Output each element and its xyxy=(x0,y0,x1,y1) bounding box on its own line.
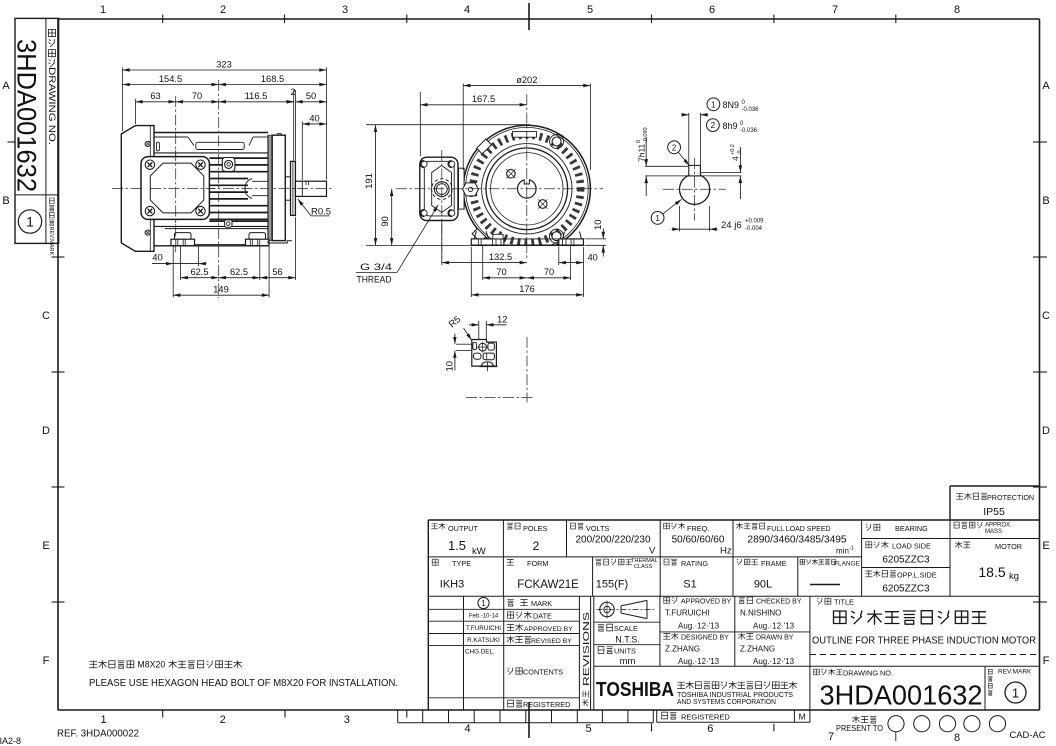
svg-text:MARK: MARK xyxy=(531,599,552,608)
svg-text:0: 0 xyxy=(737,150,743,153)
svg-text:CLASS: CLASS xyxy=(634,564,653,570)
svg-text:Hz: Hz xyxy=(720,546,732,557)
svg-text:R5: R5 xyxy=(447,314,463,330)
svg-text:2: 2 xyxy=(672,143,677,152)
svg-text:70: 70 xyxy=(192,91,202,101)
svg-text:4: 4 xyxy=(464,723,470,735)
svg-text:kg: kg xyxy=(1009,571,1019,582)
svg-text:AND SYSTEMS CORPORATION: AND SYSTEMS CORPORATION xyxy=(677,699,776,706)
svg-text:5: 5 xyxy=(587,4,593,16)
svg-text:MASS: MASS xyxy=(985,529,1002,535)
svg-text:N.T.S.: N.T.S. xyxy=(615,635,640,645)
svg-text:IKH3: IKH3 xyxy=(440,579,464,591)
svg-text:FRAME: FRAME xyxy=(761,559,787,568)
svg-text:12: 12 xyxy=(497,315,508,326)
svg-text:6: 6 xyxy=(707,723,713,735)
svg-text:THREAD: THREAD xyxy=(357,275,392,286)
svg-text:APPROX.: APPROX. xyxy=(985,523,1012,529)
svg-text:6205ZZC3: 6205ZZC3 xyxy=(882,555,930,566)
svg-text:40: 40 xyxy=(309,113,319,123)
svg-text:0: 0 xyxy=(740,121,744,127)
svg-text:7: 7 xyxy=(832,4,838,16)
svg-text:1: 1 xyxy=(481,599,486,608)
svg-text:1: 1 xyxy=(101,714,107,726)
svg-text:2: 2 xyxy=(711,121,716,130)
svg-text:3: 3 xyxy=(344,714,350,726)
svg-text:PLEASE USE HEXAGON HEAD BOLT O: PLEASE USE HEXAGON HEAD BOLT OF M8X20 FO… xyxy=(89,678,398,689)
svg-text:1.5: 1.5 xyxy=(448,538,466,553)
svg-text:2: 2 xyxy=(220,4,226,16)
svg-text:DRAWING NO.: DRAWING NO. xyxy=(47,67,57,145)
svg-text:1: 1 xyxy=(655,214,660,223)
svg-text:T.FURUICHI: T.FURUICHI xyxy=(466,625,501,632)
svg-text:DATE: DATE xyxy=(533,612,552,621)
svg-text:FREQ.: FREQ. xyxy=(687,524,709,533)
svg-text:-0.090: -0.090 xyxy=(643,127,649,143)
svg-text:7h11: 7h11 xyxy=(637,143,647,162)
svg-text:90L: 90L xyxy=(754,579,772,591)
svg-text:3HDA001632: 3HDA001632 xyxy=(12,39,42,192)
svg-text:Aug.·12·'13: Aug.·12·'13 xyxy=(678,657,720,666)
svg-text:FLANGE: FLANGE xyxy=(834,561,861,568)
svg-text:OUTLINE FOR THREE PHASE INDUCT: OUTLINE FOR THREE PHASE INDUCTION MOTOR xyxy=(812,636,1036,647)
svg-text:V: V xyxy=(649,546,656,557)
svg-text:50/60/60/60: 50/60/60/60 xyxy=(672,535,725,546)
svg-text:FCKAW21E: FCKAW21E xyxy=(517,579,579,591)
svg-text:4: 4 xyxy=(731,156,741,161)
svg-text:CHECKED BY: CHECKED BY xyxy=(756,599,802,606)
svg-text:TOSHIBA: TOSHIBA xyxy=(596,679,674,701)
svg-text:200/200/220/230: 200/200/220/230 xyxy=(575,535,651,546)
svg-text:40: 40 xyxy=(152,252,163,263)
svg-text:ø202: ø202 xyxy=(516,75,537,85)
svg-text:FULL LOAD SPEED: FULL LOAD SPEED xyxy=(767,526,831,533)
svg-text:F: F xyxy=(1043,655,1050,667)
svg-text:OPP.L.SIDE: OPP.L.SIDE xyxy=(897,571,937,580)
svg-text:Aug.·12·'13: Aug.·12·'13 xyxy=(753,657,795,666)
svg-text:E: E xyxy=(42,540,49,552)
svg-text:70: 70 xyxy=(544,267,554,277)
svg-text:B: B xyxy=(2,195,9,207)
svg-text:B: B xyxy=(1042,195,1049,207)
svg-text:VOLTS: VOLTS xyxy=(586,524,610,533)
svg-text:DRAWING NO.: DRAWING NO. xyxy=(843,669,893,678)
svg-text:C: C xyxy=(42,310,50,322)
svg-text:REVISIONS: REVISIONS xyxy=(582,612,591,686)
svg-text:UNITS: UNITS xyxy=(614,647,636,656)
svg-text:Aug.·12·'13: Aug.·12·'13 xyxy=(678,622,720,631)
svg-text:CAD-AC: CAD-AC xyxy=(1010,730,1047,740)
svg-text:M8X20: M8X20 xyxy=(137,660,165,670)
svg-text:A: A xyxy=(2,80,10,92)
svg-text:116.5: 116.5 xyxy=(245,91,268,101)
svg-text:8: 8 xyxy=(954,4,960,16)
svg-text:3HDA001632: 3HDA001632 xyxy=(820,680,983,711)
svg-text:+0.2: +0.2 xyxy=(730,144,736,155)
svg-text:APPROVED BY: APPROVED BY xyxy=(681,599,732,606)
svg-text:CONTENTS: CONTENTS xyxy=(523,668,563,677)
svg-text:10: 10 xyxy=(444,361,455,372)
svg-text:D: D xyxy=(42,425,50,437)
svg-text:Z.ZHANG: Z.ZHANG xyxy=(665,645,700,654)
svg-text:E: E xyxy=(1042,540,1049,552)
svg-text:154.5: 154.5 xyxy=(159,74,182,84)
svg-text:APPROVED BY: APPROVED BY xyxy=(524,626,573,633)
svg-text:1: 1 xyxy=(26,214,34,230)
svg-text:A: A xyxy=(1042,80,1050,92)
svg-text:176: 176 xyxy=(519,284,535,294)
svg-text:SCALE: SCALE xyxy=(614,624,638,633)
svg-text:REV.MARK: REV.MARK xyxy=(998,669,1032,676)
svg-text:6205ZZC3: 6205ZZC3 xyxy=(882,584,930,595)
svg-text:kW: kW xyxy=(472,546,486,557)
svg-text:90: 90 xyxy=(380,216,391,227)
svg-text:N.NISHINO: N.NISHINO xyxy=(740,609,781,618)
svg-text:MOTOR: MOTOR xyxy=(995,542,1022,551)
svg-text:168.5: 168.5 xyxy=(261,74,284,84)
svg-text:REF. 3HDA000022: REF. 3HDA000022 xyxy=(57,728,139,740)
svg-text:C: C xyxy=(1042,310,1050,322)
svg-text:BEARING: BEARING xyxy=(895,524,928,533)
svg-text:62.5: 62.5 xyxy=(230,267,248,277)
svg-text:T.FURUICHI: T.FURUICHI xyxy=(665,609,709,618)
svg-text:50: 50 xyxy=(306,91,316,101)
svg-text:40: 40 xyxy=(588,252,598,262)
svg-text:REV.MARK: REV.MARK xyxy=(48,227,54,256)
svg-text:REGISTERED: REGISTERED xyxy=(681,713,730,722)
svg-text:0: 0 xyxy=(742,100,746,106)
svg-text:Aug.·12·'13: Aug.·12·'13 xyxy=(753,622,795,631)
svg-text:TITLE: TITLE xyxy=(834,598,854,607)
svg-text:1: 1 xyxy=(1012,685,1019,700)
svg-text:FORM: FORM xyxy=(527,559,548,568)
svg-text:CHG.DEL.: CHG.DEL. xyxy=(465,649,495,656)
svg-text:5: 5 xyxy=(585,723,591,735)
svg-text:REVISED BY: REVISED BY xyxy=(531,638,572,645)
svg-text:0: 0 xyxy=(636,140,642,143)
svg-text:1: 1 xyxy=(100,4,106,16)
svg-text:18.5: 18.5 xyxy=(978,564,1005,580)
svg-text:D: D xyxy=(1042,425,1050,437)
svg-text:R.KATSUKI: R.KATSUKI xyxy=(467,637,500,644)
svg-text:TOSHIBA INDUSTRIAL PRODUCTS: TOSHIBA INDUSTRIAL PRODUCTS xyxy=(677,692,793,699)
svg-text:-0.004: -0.004 xyxy=(745,226,763,232)
svg-text:-1: -1 xyxy=(849,546,854,552)
svg-text:mm: mm xyxy=(620,656,636,667)
svg-text:S1: S1 xyxy=(683,579,696,591)
svg-text:DRAWN BY: DRAWN BY xyxy=(756,635,794,642)
svg-text:G 3/4: G 3/4 xyxy=(360,262,392,273)
svg-text:REGISTERED: REGISTERED xyxy=(523,700,570,709)
svg-text:2890/3460/3485/3495: 2890/3460/3485/3495 xyxy=(747,535,846,546)
svg-text:DESIGNED BY: DESIGNED BY xyxy=(681,635,729,642)
svg-text:2: 2 xyxy=(220,714,226,726)
svg-text:2: 2 xyxy=(533,539,540,553)
svg-text:132.5: 132.5 xyxy=(489,252,512,262)
svg-text:-0.036: -0.036 xyxy=(742,107,760,113)
svg-text:323: 323 xyxy=(216,59,232,69)
svg-text:+0.009: +0.009 xyxy=(745,219,764,225)
svg-text:4: 4 xyxy=(464,4,470,16)
svg-text:3: 3 xyxy=(342,4,348,16)
svg-text:min: min xyxy=(836,547,849,556)
svg-text:167.5: 167.5 xyxy=(472,94,495,104)
svg-text:PROTECTION: PROTECTION xyxy=(987,493,1034,502)
svg-text:155(F): 155(F) xyxy=(596,579,628,591)
svg-text:2: 2 xyxy=(290,87,295,97)
svg-text:POLES: POLES xyxy=(523,524,547,533)
svg-text:Feb.-10-14: Feb.-10-14 xyxy=(469,614,499,620)
svg-text:3A2-8: 3A2-8 xyxy=(0,736,21,746)
svg-text:10: 10 xyxy=(593,219,604,230)
svg-text:8: 8 xyxy=(954,732,960,744)
svg-text:62.5: 62.5 xyxy=(190,267,208,277)
svg-text:7: 7 xyxy=(828,731,834,743)
svg-text:-0.036: -0.036 xyxy=(740,128,758,134)
svg-text:8h9: 8h9 xyxy=(723,121,738,131)
svg-text:6: 6 xyxy=(709,4,715,16)
svg-text:RATING: RATING xyxy=(681,559,708,568)
svg-text:F: F xyxy=(43,655,50,667)
svg-text:LOAD SIDE: LOAD SIDE xyxy=(892,542,931,551)
svg-text:M: M xyxy=(798,712,805,722)
svg-text:IP55: IP55 xyxy=(983,506,1005,518)
svg-text:PRESENT TO: PRESENT TO xyxy=(836,724,883,733)
svg-text:191: 191 xyxy=(364,173,375,189)
svg-text:TYPE: TYPE xyxy=(452,559,471,568)
svg-text:70: 70 xyxy=(496,267,506,277)
svg-text:8N9: 8N9 xyxy=(723,100,740,110)
svg-text:149: 149 xyxy=(213,285,229,295)
svg-text:56: 56 xyxy=(272,267,282,277)
svg-text:OUTPUT: OUTPUT xyxy=(448,524,479,533)
svg-text:Z.ZHANG: Z.ZHANG xyxy=(740,645,775,654)
svg-text:1: 1 xyxy=(711,100,716,109)
svg-text:24 j6: 24 j6 xyxy=(721,220,742,231)
svg-text:63: 63 xyxy=(150,91,160,101)
